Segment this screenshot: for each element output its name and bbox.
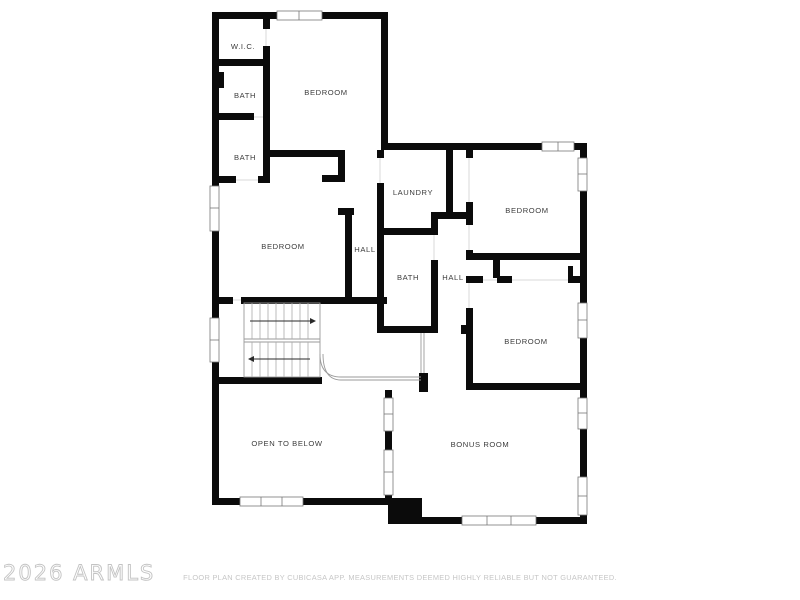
room-label-bath-1: BATH [234, 91, 256, 100]
stair-treads [252, 303, 308, 377]
room-label-open-to-below: OPEN TO BELOW [251, 439, 322, 448]
room-label-bedroom-3: BEDROOM [505, 206, 548, 215]
staircase [244, 303, 424, 380]
floor-plan-page: W.I.C. BATH BEDROOM BATH BEDROOM HALL LA… [0, 0, 800, 600]
stairs-direction-arrow-down [248, 356, 310, 362]
disclaimer-text: FLOOR PLAN CREATED BY CUBICASA APP. MEAS… [183, 573, 617, 582]
room-label-bedroom-4: BEDROOM [504, 337, 547, 346]
room-label-bath-3: BATH [397, 273, 419, 282]
room-label-bedroom-1: BEDROOM [304, 88, 347, 97]
landing-railing [341, 333, 424, 380]
room-label-hall-2: HALL [442, 273, 463, 282]
door-openings [233, 29, 568, 308]
armls-watermark: 2026 ARMLS [3, 561, 155, 585]
room-label-bath-2: BATH [234, 153, 256, 162]
room-label-laundry: LAUNDRY [393, 188, 433, 197]
room-label-wic: W.I.C. [231, 42, 255, 51]
room-label-hall-1: HALL [354, 245, 375, 254]
room-label-bedroom-2: BEDROOM [261, 242, 304, 251]
floor-plan-svg: W.I.C. BATH BEDROOM BATH BEDROOM HALL LA… [0, 0, 800, 600]
room-label-bonus-room: BONUS ROOM [451, 440, 510, 449]
door-swing-arc [320, 354, 341, 380]
